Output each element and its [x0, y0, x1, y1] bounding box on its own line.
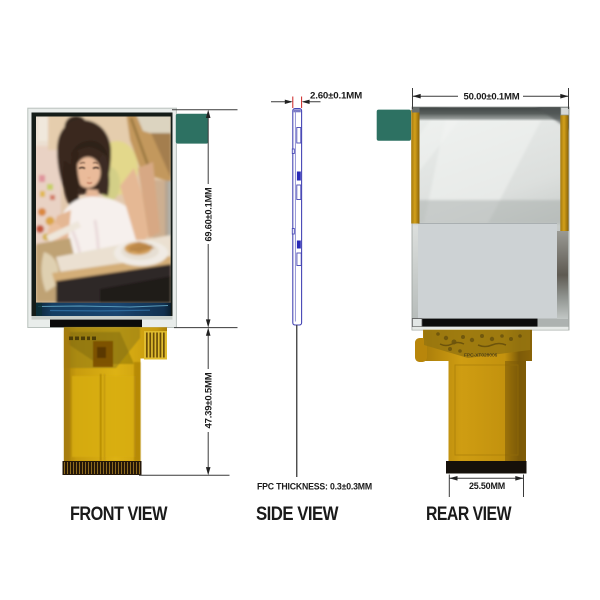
svg-text:69.60±0.1MM: 69.60±0.1MM	[204, 187, 215, 241]
svg-text:FPC-XT028006: FPC-XT028006	[464, 353, 498, 359]
svg-text:2.60±0.1MM: 2.60±0.1MM	[310, 90, 362, 101]
svg-text:FPC THICKNESS: 0.3±0.3MM: FPC THICKNESS: 0.3±0.3MM	[257, 482, 372, 493]
svg-text:25.50MM: 25.50MM	[469, 481, 505, 492]
svg-text:SIDE VIEW: SIDE VIEW	[256, 504, 339, 525]
svg-text:FRONT VIEW: FRONT VIEW	[70, 504, 168, 525]
svg-text:REAR VIEW: REAR VIEW	[426, 504, 512, 525]
svg-text:47.39±0.5MM: 47.39±0.5MM	[204, 372, 215, 428]
svg-text:50.00±0.1MM: 50.00±0.1MM	[464, 91, 520, 102]
